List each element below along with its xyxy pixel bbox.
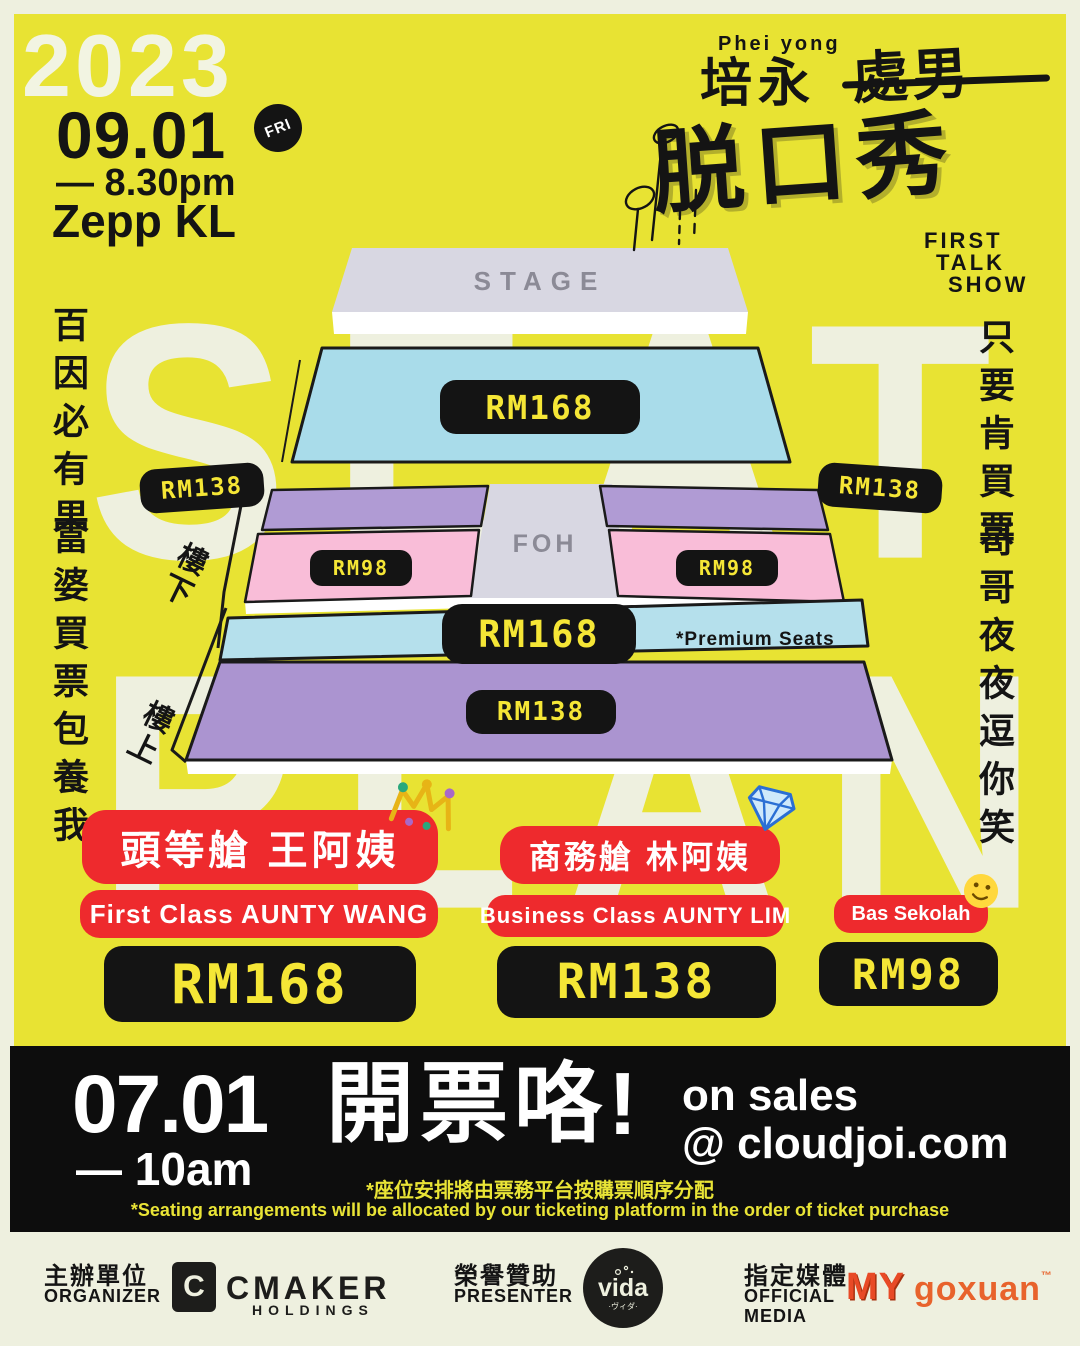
tier3-price-box: RM98 <box>819 942 998 1006</box>
artist-name-en: Phei yong <box>718 34 841 54</box>
tier2-name-en: Business Class AUNTY LIM <box>480 903 791 929</box>
presenter-label-en: PRESENTER <box>454 1286 573 1307</box>
price-badge-premium: RM168 <box>442 604 636 664</box>
seating-note-zh: *座位安排將由票務平台按購票順序分配 <box>10 1174 1070 1203</box>
price-badge-main-floor: RM168 <box>440 380 640 434</box>
slogan-right-2: 哥哥夜夜逗你笑 <box>976 520 1012 856</box>
side-right-purple-section <box>600 486 828 530</box>
tier1-name-zh: 頭等艙 王阿姨 <box>120 818 399 876</box>
goxuan-logo: goxuan™ <box>914 1270 1053 1309</box>
upstairs-front-face <box>186 760 892 774</box>
tier3-name-en: Bas Sekolah <box>852 903 971 926</box>
vida-logo: vida ·ヴィダ· <box>583 1248 663 1328</box>
subtitle-talk: TALK <box>936 252 1005 274</box>
price-badge-side-left: RM138 <box>139 462 266 515</box>
media-label-en-2: MEDIA <box>744 1306 807 1327</box>
price-badge-upstairs: RM138 <box>466 690 616 734</box>
tier2-name-en-box: Business Class AUNTY LIM <box>487 895 784 937</box>
sale-line2: @ cloudjoi.com <box>682 1122 1008 1166</box>
sale-date: 07.01 <box>72 1064 267 1146</box>
event-date: 09.01 <box>56 102 226 168</box>
tier2-name-zh-box: 商務艙 林阿姨 <box>500 826 780 884</box>
tier1-name-en-box: First Class AUNTY WANG <box>80 890 438 938</box>
sale-line1: on sales <box>682 1074 858 1118</box>
event-venue: Zepp KL <box>52 198 236 244</box>
vida-logo-sub: ·ヴィダ· <box>608 1301 637 1312</box>
slogan-left-2: 富婆買票包養我 <box>50 518 86 854</box>
fri-badge-label: FRI <box>262 115 294 141</box>
tier2-price-box: RM138 <box>497 946 776 1018</box>
year-label: 2023 <box>22 22 234 110</box>
premium-seats-note: *Premium Seats <box>676 630 835 649</box>
on-sale-bar: 07.01 — 10am 開票咯! on sales @ cloudjoi.co… <box>10 1046 1070 1232</box>
foh-label: FOH <box>500 530 590 559</box>
struck-word: 處男 <box>851 45 974 107</box>
price-badge-lower-left: RM98 <box>310 550 412 586</box>
goxuan-logo-text: goxuan <box>914 1270 1041 1308</box>
event-poster: SEAT PLAN 2023 09.01 FRI — 8.30pm Zepp K… <box>0 0 1080 1346</box>
price-badge-side-right: RM138 <box>817 462 944 515</box>
organizer-label-en: ORGANIZER <box>44 1286 161 1307</box>
vida-logo-text: vida <box>598 1276 648 1301</box>
tier2-name-zh: 商務艙 林阿姨 <box>529 832 751 878</box>
microphone-doodle-icon <box>592 112 722 262</box>
stage-label: STAGE <box>440 266 640 297</box>
tier1-price-box: RM168 <box>104 946 416 1022</box>
subtitle-first: FIRST <box>924 230 1003 252</box>
stage-front-face <box>332 312 748 334</box>
cmaker-logo-letter: C <box>183 1270 205 1304</box>
smiley-icon <box>958 868 1003 913</box>
subtitle-show: SHOW <box>948 274 1028 296</box>
cmaker-logo-mark: C <box>172 1262 216 1312</box>
slogan-left-1: 百因必有果 <box>50 306 86 546</box>
side-left-purple-section <box>262 486 488 530</box>
sale-headline-zh: 開票咯! <box>326 1060 643 1148</box>
tier1-name-en: First Class AUNTY WANG <box>90 899 428 930</box>
price-badge-lower-right: RM98 <box>676 550 778 586</box>
seating-note-en: *Seating arrangements will be allocated … <box>10 1200 1070 1221</box>
my-logo: MY <box>846 1266 905 1309</box>
media-label-en-1: OFFICIAL <box>744 1286 835 1307</box>
artist-name-zh: 培永 <box>700 58 816 110</box>
organizer-sub: HOLDINGS <box>252 1302 374 1318</box>
goxuan-tm: ™ <box>1041 1270 1053 1282</box>
